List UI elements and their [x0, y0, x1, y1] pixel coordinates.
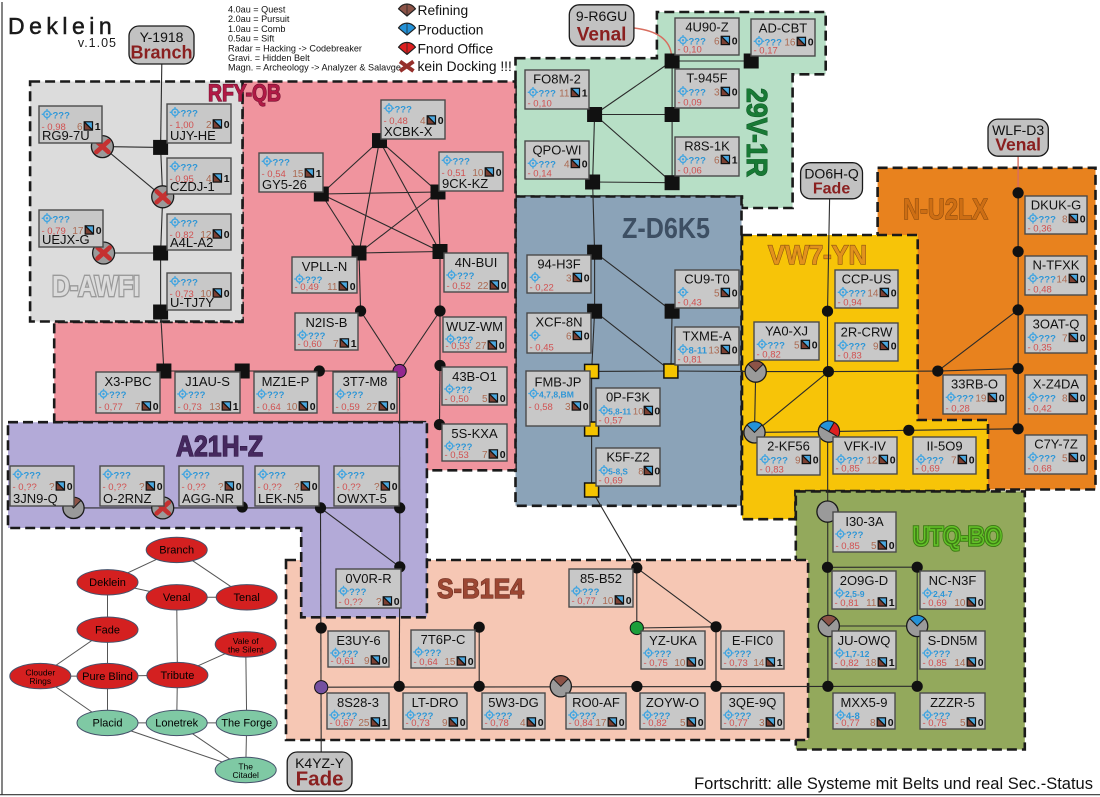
svg-text:0: 0: [654, 406, 660, 418]
svg-text:- 0,85: - 0,85: [836, 464, 860, 475]
svg-text:17: 17: [595, 718, 607, 729]
svg-text:11: 11: [327, 282, 338, 293]
svg-text:- 0,77: - 0,77: [724, 718, 748, 729]
svg-text:- 0,85: - 0,85: [923, 658, 947, 669]
svg-text:0: 0: [1080, 214, 1086, 226]
svg-text:- 0,73: - 0,73: [724, 658, 748, 669]
svg-text:0: 0: [1080, 393, 1086, 405]
svg-text:1: 1: [95, 121, 101, 133]
svg-text:T-945F: T-945F: [686, 71, 727, 86]
svg-text:R8S-1K: R8S-1K: [684, 139, 730, 154]
svg-text:2R-CRW: 2R-CRW: [841, 325, 893, 340]
svg-text:MZ1E-P: MZ1E-P: [262, 374, 310, 389]
svg-text:0: 0: [808, 37, 814, 49]
svg-text:0: 0: [978, 717, 984, 729]
svg-text:18: 18: [865, 658, 877, 669]
svg-text:???: ???: [346, 390, 364, 401]
svg-text:3: 3: [565, 402, 571, 413]
svg-text:Citadel: Citadel: [232, 770, 259, 780]
svg-text:???: ???: [348, 471, 366, 482]
svg-text:1: 1: [732, 155, 738, 167]
svg-text:5: 5: [1062, 454, 1068, 465]
svg-text:2O9G-D: 2O9G-D: [840, 573, 888, 588]
svg-text:- 0,43: - 0,43: [678, 298, 702, 309]
svg-text:Branch: Branch: [159, 545, 194, 557]
svg-text:0: 0: [96, 225, 102, 237]
svg-text:0: 0: [501, 280, 507, 292]
svg-text:- 0,28: - 0,28: [946, 404, 970, 415]
svg-text:the Silent: the Silent: [228, 644, 264, 654]
svg-text:RG9-7U: RG9-7U: [42, 128, 90, 143]
svg-text:TXME-A: TXME-A: [682, 329, 731, 344]
svg-text:- 0,81: - 0,81: [678, 355, 702, 366]
svg-text:???: ???: [453, 157, 471, 168]
svg-text:FMB-JP: FMB-JP: [535, 375, 582, 390]
svg-text:7: 7: [333, 339, 339, 350]
svg-text:0: 0: [619, 717, 625, 729]
svg-text:RFY-QB: RFY-QB: [208, 80, 281, 107]
svg-text:3: 3: [759, 718, 765, 729]
svg-text:5W3-DG: 5W3-DG: [488, 695, 539, 710]
svg-text:- 0,61: - 0,61: [331, 656, 355, 667]
svg-text:10: 10: [633, 407, 644, 418]
svg-text:7: 7: [482, 450, 488, 461]
svg-text:VPLL-N: VPLL-N: [302, 259, 348, 274]
svg-text:3T7-M8: 3T7-M8: [343, 374, 388, 389]
svg-text:0: 0: [582, 159, 588, 171]
svg-text:???: ???: [181, 219, 199, 230]
svg-text:N2IS-B: N2IS-B: [306, 315, 348, 330]
svg-text:0: 0: [698, 717, 704, 729]
svg-text:- 0,53: - 0,53: [445, 450, 469, 461]
svg-text:- 0,82: - 0,82: [643, 718, 667, 729]
svg-text:Z-D6K5: Z-D6K5: [622, 213, 710, 245]
svg-text:FO8M-2: FO8M-2: [533, 72, 581, 87]
svg-text:1: 1: [316, 168, 322, 180]
svg-text:S-DN5M: S-DN5M: [928, 633, 978, 648]
svg-text:???: ???: [181, 278, 199, 289]
svg-text:XCBK-X: XCBK-X: [384, 124, 433, 139]
svg-text:- 0,60: - 0,60: [298, 339, 322, 350]
svg-text:6: 6: [714, 37, 720, 48]
svg-text:CZDJ-1: CZDJ-1: [170, 179, 215, 194]
svg-text:C7Y-7Z: C7Y-7Z: [1034, 437, 1078, 452]
svg-text:Pure Blind: Pure Blind: [82, 671, 133, 683]
svg-text:???: ???: [273, 158, 291, 169]
svg-text:3: 3: [566, 274, 572, 285]
svg-text:25: 25: [358, 718, 370, 729]
svg-text:0: 0: [382, 655, 388, 667]
svg-text:8: 8: [638, 467, 643, 478]
svg-text:10: 10: [674, 658, 686, 669]
svg-text:5: 5: [714, 289, 720, 300]
svg-text:N-U2LX: N-U2LX: [903, 194, 989, 226]
svg-text:3JN9-Q: 3JN9-Q: [13, 491, 58, 506]
svg-text:- 0,14: - 0,14: [528, 169, 552, 180]
svg-text:???: ???: [846, 530, 864, 541]
svg-text:0: 0: [1080, 333, 1086, 345]
svg-text:1: 1: [889, 657, 895, 669]
svg-text:O-2RNZ: O-2RNZ: [103, 491, 151, 506]
svg-text:Lonetrek: Lonetrek: [155, 718, 198, 730]
svg-text:1: 1: [582, 88, 588, 100]
svg-text:0: 0: [350, 281, 356, 293]
svg-text:K5F-Z2: K5F-Z2: [606, 450, 649, 465]
svg-text:43B-O1: 43B-O1: [452, 369, 497, 384]
svg-text:GY5-26: GY5-26: [262, 177, 307, 192]
svg-text:29V-1R: 29V-1R: [740, 88, 772, 177]
svg-text:0: 0: [312, 481, 318, 493]
svg-text:0: 0: [1080, 453, 1086, 465]
svg-text:- 0,83: - 0,83: [760, 465, 784, 476]
svg-text:9CK-KZ: 9CK-KZ: [442, 176, 488, 191]
svg-text:0: 0: [978, 657, 984, 669]
svg-text:- 0,94: - 0,94: [838, 298, 862, 309]
svg-text:7: 7: [135, 402, 141, 413]
svg-text:???: ???: [193, 471, 211, 482]
svg-text:Fnord Office: Fnord Office: [418, 42, 494, 57]
svg-text:Venal: Venal: [577, 25, 627, 46]
svg-text:- 0,69: - 0,69: [599, 476, 623, 487]
svg-text:3QE-9Q: 3QE-9Q: [729, 695, 777, 710]
svg-text:8: 8: [1062, 215, 1068, 226]
svg-text:Gravi. = Hidden Belt: Gravi. = Hidden Belt: [228, 53, 310, 63]
svg-text:Tenal: Tenal: [234, 592, 260, 604]
svg-text:5: 5: [482, 394, 488, 405]
svg-text:0: 0: [978, 597, 984, 609]
svg-text:4U90-Z: 4U90-Z: [685, 20, 728, 35]
svg-text:14: 14: [954, 658, 966, 669]
svg-text:- 0,75: - 0,75: [923, 718, 947, 729]
svg-text:Venal: Venal: [163, 592, 191, 604]
svg-text:- 0,17: - 0,17: [754, 46, 778, 57]
svg-text:v.1.05: v.1.05: [78, 36, 117, 50]
svg-text:A4L-A2: A4L-A2: [170, 235, 213, 250]
svg-text:QPO-WI: QPO-WI: [532, 143, 581, 158]
svg-text:1: 1: [889, 597, 895, 609]
svg-text:???: ???: [267, 390, 285, 401]
svg-text:8: 8: [870, 718, 876, 729]
svg-text:???: ???: [188, 390, 206, 401]
svg-text:3OAT-Q: 3OAT-Q: [1033, 317, 1080, 332]
svg-text:YZ-UKA: YZ-UKA: [649, 633, 697, 648]
svg-text:ZOYW-O: ZOYW-O: [646, 695, 699, 710]
svg-text:13: 13: [209, 402, 221, 413]
svg-text:5: 5: [680, 718, 686, 729]
svg-text:0: 0: [812, 340, 818, 352]
svg-text:9: 9: [364, 656, 370, 667]
svg-text:- 0,57: - 0,57: [599, 416, 623, 427]
svg-text:0: 0: [698, 657, 704, 669]
svg-text:0: 0: [890, 455, 896, 467]
svg-text:- 0,78: - 0,78: [485, 718, 509, 729]
svg-text:- 0,35: - 0,35: [1028, 343, 1052, 354]
svg-text:???: ???: [114, 471, 132, 482]
svg-text:- 0,84: - 0,84: [569, 718, 593, 729]
svg-text:0: 0: [538, 717, 544, 729]
svg-text:- 0,22: - 0,22: [530, 283, 554, 294]
svg-text:Venal: Venal: [995, 135, 1041, 155]
svg-text:- 0,69: - 0,69: [923, 598, 947, 609]
svg-text:0: 0: [153, 401, 159, 413]
svg-text:E3UY-6: E3UY-6: [336, 633, 380, 648]
svg-text:8S28-3: 8S28-3: [337, 695, 379, 710]
svg-text:11: 11: [866, 598, 877, 609]
svg-text:LT-DRO: LT-DRO: [412, 695, 459, 710]
svg-text:S-B1E4: S-B1E4: [437, 573, 524, 604]
svg-text:- 0,59: - 0,59: [336, 402, 360, 413]
svg-text:0: 0: [732, 87, 738, 99]
svg-text:???: ???: [53, 111, 71, 122]
svg-text:UEJX-G: UEJX-G: [42, 232, 90, 247]
svg-text:5S-KXA: 5S-KXA: [451, 426, 498, 441]
svg-text:J1AU-S: J1AU-S: [185, 374, 230, 389]
svg-text:D-AWFI: D-AWFI: [52, 271, 140, 303]
svg-text:Tribute: Tribute: [160, 670, 194, 682]
svg-text:4N-BUI: 4N-BUI: [455, 255, 498, 270]
svg-text:8: 8: [1062, 394, 1068, 405]
svg-text:19: 19: [975, 394, 987, 405]
svg-text:33RB-O: 33RB-O: [951, 377, 998, 392]
svg-text:14: 14: [753, 658, 765, 669]
svg-text:I30-3A: I30-3A: [845, 514, 884, 529]
svg-text:27: 27: [366, 402, 378, 413]
svg-text:1.0au = Comb: 1.0au = Comb: [228, 24, 285, 34]
svg-text:???: ???: [395, 105, 413, 116]
svg-text:Refining: Refining: [418, 3, 469, 18]
svg-text:1: 1: [224, 173, 230, 185]
svg-text:???: ???: [269, 471, 287, 482]
svg-text:U-TJ7Y: U-TJ7Y: [170, 295, 214, 310]
svg-text:???: ???: [181, 163, 199, 174]
svg-text:- 0,73: - 0,73: [406, 718, 430, 729]
svg-text:0: 0: [732, 36, 738, 48]
svg-text:0: 0: [777, 717, 783, 729]
svg-text:0: 0: [224, 288, 230, 300]
svg-text:6: 6: [566, 332, 572, 343]
svg-text:0: 0: [468, 656, 474, 668]
svg-text:UJY-HE: UJY-HE: [170, 128, 216, 143]
svg-text:- 0,50: - 0,50: [445, 394, 469, 405]
svg-text:MXX5-9: MXX5-9: [841, 695, 888, 710]
svg-text:???: ???: [109, 390, 127, 401]
svg-text:RO0-AF: RO0-AF: [572, 695, 620, 710]
svg-text:YA0-XJ: YA0-XJ: [765, 324, 808, 339]
svg-text:- 0,67: - 0,67: [330, 718, 354, 729]
svg-text:X-Z4DA: X-Z4DA: [1033, 377, 1080, 392]
svg-text:- 0,85: - 0,85: [836, 541, 860, 552]
svg-text:0: 0: [584, 273, 590, 285]
svg-text:???: ???: [181, 109, 199, 120]
svg-text:0: 0: [583, 401, 589, 413]
svg-text:0: 0: [157, 481, 163, 493]
svg-text:UTQ-BO: UTQ-BO: [913, 521, 1002, 551]
svg-text:10: 10: [286, 402, 298, 413]
svg-text:0: 0: [438, 115, 444, 127]
svg-text:0.5au = Sift: 0.5au = Sift: [228, 34, 275, 44]
svg-text:0: 0: [460, 717, 466, 729]
svg-text:5: 5: [871, 541, 877, 552]
svg-text:1: 1: [351, 338, 357, 350]
svg-text:0: 0: [969, 455, 975, 467]
svg-text:3: 3: [714, 88, 720, 99]
svg-text:Fade: Fade: [813, 180, 850, 197]
svg-text:0: 0: [732, 288, 738, 300]
svg-text:- 0,10: - 0,10: [678, 45, 702, 56]
svg-text:0: 0: [392, 481, 398, 493]
svg-text:Rings: Rings: [29, 676, 51, 686]
svg-text:85-B52: 85-B52: [580, 571, 622, 586]
svg-text:0V0R-R: 0V0R-R: [345, 571, 391, 586]
svg-text:6: 6: [714, 156, 720, 167]
svg-text:0: 0: [654, 466, 660, 478]
svg-text:LEK-N5: LEK-N5: [258, 491, 304, 506]
svg-text:- 0,75: - 0,75: [644, 658, 668, 669]
svg-text:16: 16: [784, 38, 796, 49]
svg-text:7T6P-C: 7T6P-C: [421, 632, 466, 647]
svg-text:13: 13: [708, 346, 720, 357]
svg-text:0: 0: [891, 341, 897, 353]
svg-text:0: 0: [500, 449, 506, 461]
svg-text:0: 0: [310, 401, 316, 413]
svg-text:4,7,8,BM: 4,7,8,BM: [539, 390, 574, 400]
svg-text:Radar = Hacking -> Codebreaker: Radar = Hacking -> Codebreaker: [228, 43, 362, 53]
svg-text:DKUK-G: DKUK-G: [1031, 198, 1082, 213]
svg-text:0: 0: [891, 288, 897, 300]
svg-text:- 0,52: - 0,52: [447, 281, 471, 292]
svg-text:1: 1: [233, 401, 239, 413]
svg-text:0: 0: [224, 229, 230, 241]
svg-text:- 0,68: - 0,68: [1028, 464, 1052, 475]
svg-text:0: 0: [224, 119, 230, 131]
svg-text:CCP-US: CCP-US: [842, 272, 892, 287]
svg-text:0: 0: [813, 455, 819, 467]
svg-text:Branch: Branch: [130, 43, 192, 63]
svg-text:The Forge: The Forge: [221, 718, 272, 730]
svg-text:0: 0: [390, 401, 396, 413]
svg-text:DO6H-Q: DO6H-Q: [804, 166, 859, 182]
svg-text:94-H3F: 94-H3F: [537, 257, 580, 272]
svg-text:Magn. = Archeology -> Analyzer: Magn. = Archeology -> Analyzer & Salavge: [228, 63, 401, 73]
svg-text:- 0,??: - 0,??: [339, 597, 363, 608]
svg-text:- 0,48: - 0,48: [1028, 285, 1052, 296]
svg-text:- 0,36: - 0,36: [1028, 224, 1052, 235]
svg-text:0: 0: [496, 167, 502, 179]
svg-text:9: 9: [795, 456, 801, 467]
svg-text:4.0au = Quest: 4.0au = Quest: [228, 5, 286, 15]
svg-text:Fortschritt: alle Systeme mit: Fortschritt: alle Systeme mit Belts und …: [694, 775, 1093, 793]
svg-text:- 0,82: - 0,82: [757, 350, 781, 361]
svg-text:VFK-IV: VFK-IV: [844, 439, 886, 454]
svg-text:- 0,83: - 0,83: [838, 351, 862, 362]
svg-text:0: 0: [626, 595, 632, 607]
svg-text:0: 0: [999, 393, 1005, 405]
svg-text:9: 9: [873, 342, 879, 353]
svg-text:11: 11: [559, 89, 570, 100]
svg-text:Fade: Fade: [95, 625, 120, 637]
svg-text:12: 12: [866, 456, 878, 467]
svg-text:0: 0: [499, 340, 505, 352]
svg-text:???: ???: [24, 471, 42, 482]
svg-text:- 0,45: - 0,45: [530, 343, 554, 354]
svg-text:0: 0: [67, 481, 73, 493]
svg-text:- 0,06: - 0,06: [678, 166, 702, 177]
svg-text:- 0,77: - 0,77: [99, 402, 123, 413]
svg-text:10: 10: [602, 596, 614, 607]
svg-text:VW7-YN: VW7-YN: [768, 240, 867, 270]
svg-text:27: 27: [475, 341, 487, 352]
svg-text:0: 0: [500, 393, 506, 405]
svg-text:A21H-Z: A21H-Z: [176, 431, 263, 463]
svg-text:22: 22: [477, 281, 489, 292]
svg-text:N-TFXK: N-TFXK: [1033, 258, 1080, 273]
svg-text:4: 4: [564, 160, 570, 171]
svg-text:- 0,64: - 0,64: [257, 402, 281, 413]
svg-text:Placid: Placid: [93, 718, 123, 730]
svg-text:5: 5: [794, 341, 800, 352]
svg-text:X3-PBC: X3-PBC: [105, 374, 152, 389]
svg-text:- 0,09: - 0,09: [678, 98, 702, 109]
svg-text:2-KF56: 2-KF56: [767, 439, 810, 454]
svg-text:E-FIC0: E-FIC0: [732, 633, 773, 648]
svg-text:0: 0: [732, 345, 738, 357]
svg-text:Deklein: Deklein: [89, 577, 126, 589]
svg-text:kein Docking !!!: kein Docking !!!: [418, 59, 512, 74]
svg-text:- 0,82: - 0,82: [835, 658, 859, 669]
svg-text:- 0,77: - 0,77: [572, 596, 596, 607]
svg-text:- 0,77: - 0,77: [836, 718, 860, 729]
svg-text:- 0,64: - 0,64: [414, 657, 438, 668]
svg-text:CU9-T0: CU9-T0: [684, 272, 730, 287]
svg-text:- 0,73: - 0,73: [178, 402, 202, 413]
svg-text:NC-N3F: NC-N3F: [929, 573, 977, 588]
svg-text:WUZ-WM: WUZ-WM: [446, 319, 503, 334]
svg-text:- 0,58: - 0,58: [529, 402, 553, 413]
svg-text:10: 10: [954, 598, 966, 609]
svg-text:1: 1: [382, 717, 388, 729]
svg-text:Production: Production: [418, 22, 484, 37]
svg-text:?: ?: [376, 597, 382, 608]
svg-text:0: 0: [236, 481, 242, 493]
svg-text:JU-OWQ: JU-OWQ: [838, 633, 891, 648]
svg-text:14: 14: [1056, 275, 1068, 286]
svg-text:2.0au = Pursuit: 2.0au = Pursuit: [228, 14, 290, 24]
svg-text:- 0,81: - 0,81: [835, 598, 859, 609]
svg-text:7: 7: [951, 456, 957, 467]
svg-text:14: 14: [867, 289, 879, 300]
svg-text:15: 15: [444, 657, 456, 668]
svg-text:II-5O9: II-5O9: [926, 439, 962, 454]
svg-text:0: 0: [888, 717, 894, 729]
svg-text:OWXT-5: OWXT-5: [337, 491, 387, 506]
svg-text:1: 1: [777, 657, 783, 669]
svg-text:0: 0: [1080, 274, 1086, 286]
svg-text:- 0,42: - 0,42: [1028, 404, 1052, 415]
svg-text:4: 4: [520, 718, 526, 729]
svg-text:- 0,69: - 0,69: [916, 464, 940, 475]
svg-text:7: 7: [1062, 334, 1068, 345]
svg-text:- 0,53: - 0,53: [446, 341, 470, 352]
svg-text:0P-F3K: 0P-F3K: [606, 390, 650, 405]
svg-text:AD-CBT: AD-CBT: [759, 21, 807, 36]
svg-text:0: 0: [584, 331, 590, 343]
svg-text:Fade: Fade: [296, 768, 344, 791]
svg-text:9-R6GU: 9-R6GU: [576, 8, 627, 24]
svg-text:0: 0: [394, 596, 400, 608]
svg-text:- 0,49: - 0,49: [295, 282, 319, 293]
svg-text:0: 0: [889, 540, 895, 552]
svg-text:???: ???: [53, 215, 71, 226]
